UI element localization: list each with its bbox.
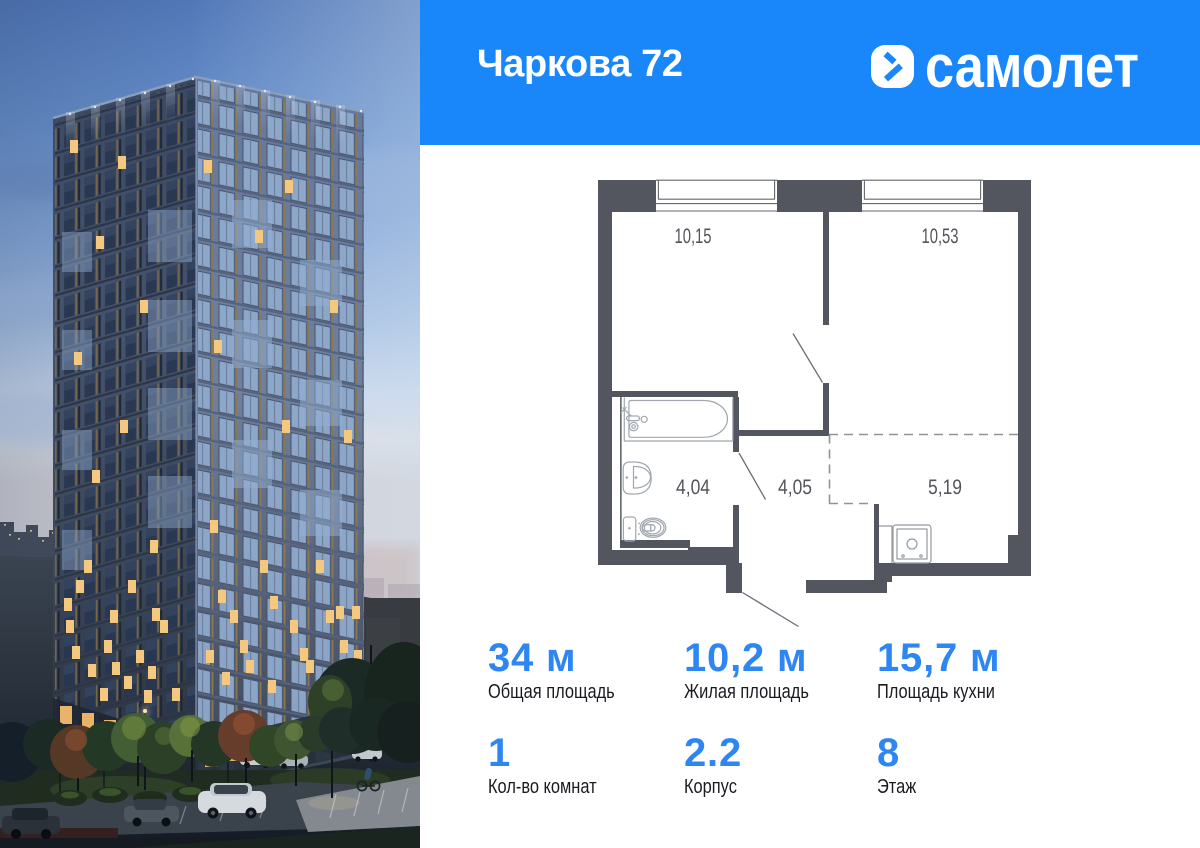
svg-text:4,05: 4,05 bbox=[778, 476, 812, 499]
svg-text:10,15: 10,15 bbox=[675, 225, 712, 248]
svg-text:10,53: 10,53 bbox=[922, 225, 959, 248]
svg-text:4,04: 4,04 bbox=[676, 476, 710, 499]
svg-text:5,19: 5,19 bbox=[928, 476, 962, 499]
svg-text:самолет: самолет bbox=[925, 44, 1139, 94]
